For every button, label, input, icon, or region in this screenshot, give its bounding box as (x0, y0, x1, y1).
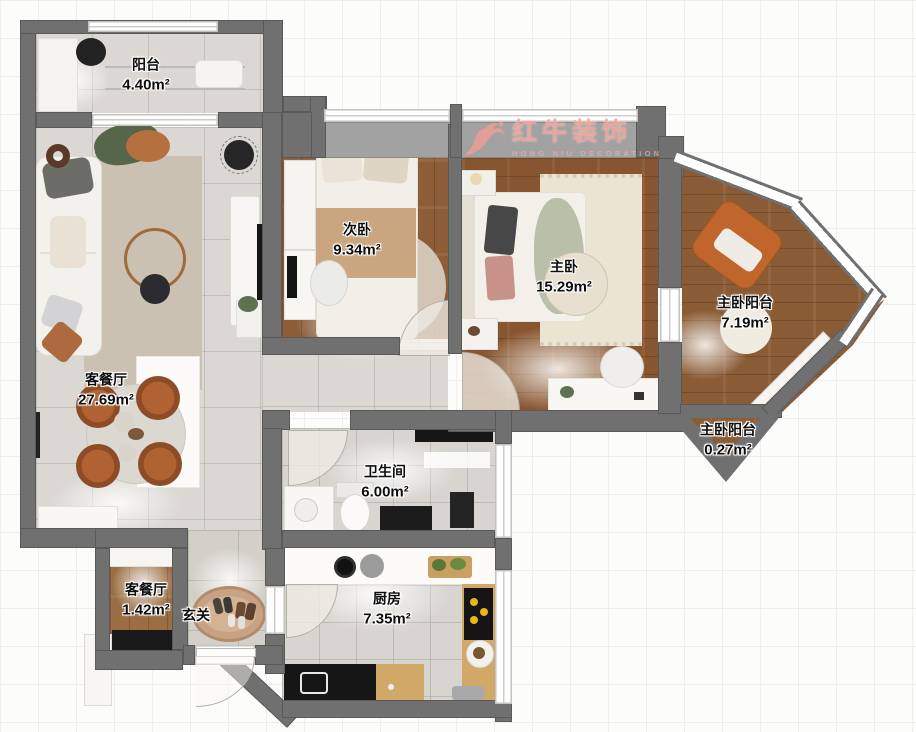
bay-window-sill (314, 122, 450, 158)
window (495, 444, 512, 538)
drying-rack (195, 60, 243, 88)
wall (95, 650, 183, 670)
bathroom-shelf (424, 452, 490, 468)
wall (172, 548, 188, 650)
room-label-master-balcony-small: 主卧阳台 0.27m² (700, 419, 756, 460)
wall (20, 20, 36, 548)
wall (20, 528, 96, 548)
ottoman (140, 274, 170, 304)
wall (262, 410, 290, 430)
cooktop-flame (470, 598, 478, 606)
wall (255, 645, 283, 665)
room-label-bathroom: 卫生间 6.00m² (361, 461, 409, 502)
wall (95, 528, 188, 548)
wall (282, 530, 495, 548)
wardrobe (284, 160, 316, 250)
cabinet-knob (388, 684, 394, 690)
room-label-hallway: 玄关 (182, 605, 210, 625)
vegetables (450, 558, 466, 570)
floor-plan-canvas: 红牛装饰 HONG NIU DECORATION 阳台 4.40m² 客餐厅 2… (0, 0, 916, 732)
cooktop (464, 588, 493, 640)
dining-chair (136, 376, 180, 420)
room-label-balcony: 阳台 4.40m² (122, 54, 170, 95)
kitchen-sink (300, 672, 328, 694)
wall (183, 645, 195, 665)
small-room-cabinet-white (110, 548, 172, 567)
floor-mat (452, 686, 484, 700)
wall (262, 337, 400, 355)
throw-pillow-beige (50, 216, 86, 268)
kitchen-cabinet-wood (376, 664, 424, 700)
desk-chair (310, 260, 348, 306)
watermark: 红牛装饰 HONG NIU DECORATION (458, 120, 662, 163)
plate (118, 444, 136, 462)
wall (658, 342, 682, 414)
room-label-dining-small: 客餐厅 1.42m² (122, 579, 170, 620)
lounge-chair-seat (126, 130, 170, 162)
wall (265, 548, 285, 586)
kitchen-door (265, 586, 285, 634)
wall (262, 428, 282, 550)
ceiling-fan-hub (224, 140, 254, 170)
wall (495, 538, 512, 570)
desk-plant (560, 386, 574, 398)
cooktop-flame (480, 608, 488, 616)
pan (360, 554, 384, 578)
brand-bull-icon (458, 120, 506, 163)
balcony-slider-window (92, 114, 218, 126)
window (495, 570, 512, 704)
room-label-kitchen: 厨房 7.35m² (363, 588, 411, 629)
balcony-cabinet (38, 38, 78, 112)
wall (218, 112, 263, 128)
small-room-cabinet-black (112, 630, 174, 650)
wall (282, 700, 512, 718)
wall (350, 410, 496, 430)
speaker (76, 38, 106, 66)
desk-book (634, 392, 644, 400)
dining-chair (138, 442, 182, 486)
cooking-pot (334, 556, 356, 578)
room-label-living: 客餐厅 27.69m² (78, 369, 134, 410)
side-table-ring (46, 144, 70, 168)
pillow-pink (484, 255, 515, 301)
bath-heater (450, 492, 474, 528)
wall (658, 158, 682, 288)
watermark-brand: 红牛装饰 (512, 120, 662, 145)
dining-chair (76, 444, 120, 488)
storage-box (380, 506, 432, 532)
pillow-dark (484, 205, 519, 256)
room-label-master-balcony: 主卧阳台 7.19m² (717, 292, 773, 333)
sink (294, 498, 318, 522)
slipper (238, 616, 245, 629)
table-lamp (470, 173, 482, 185)
headboard (460, 190, 474, 320)
wall (282, 112, 312, 158)
balcony-door (660, 288, 680, 342)
window (324, 109, 450, 122)
room-label-master-bedroom: 主卧 15.29m² (536, 256, 592, 297)
kitchen-counter-bottom (284, 664, 376, 700)
pet-bowl (468, 326, 480, 336)
room-label-second-bedroom: 次卧 9.34m² (333, 219, 381, 260)
entry-door-swing (196, 656, 255, 707)
sink-basin (473, 647, 485, 659)
wall (310, 96, 326, 158)
plant (238, 296, 258, 312)
centerpiece-bowl (128, 428, 144, 440)
watermark-subtitle: HONG NIU DECORATION (512, 149, 662, 158)
wall (495, 410, 512, 444)
vegetables (432, 559, 446, 571)
window (88, 21, 218, 32)
wall (36, 112, 92, 128)
wall (262, 112, 282, 352)
slipper (228, 614, 235, 627)
master-desk-chair (600, 346, 644, 388)
cooktop-flame (470, 616, 478, 624)
monitor (287, 256, 297, 298)
